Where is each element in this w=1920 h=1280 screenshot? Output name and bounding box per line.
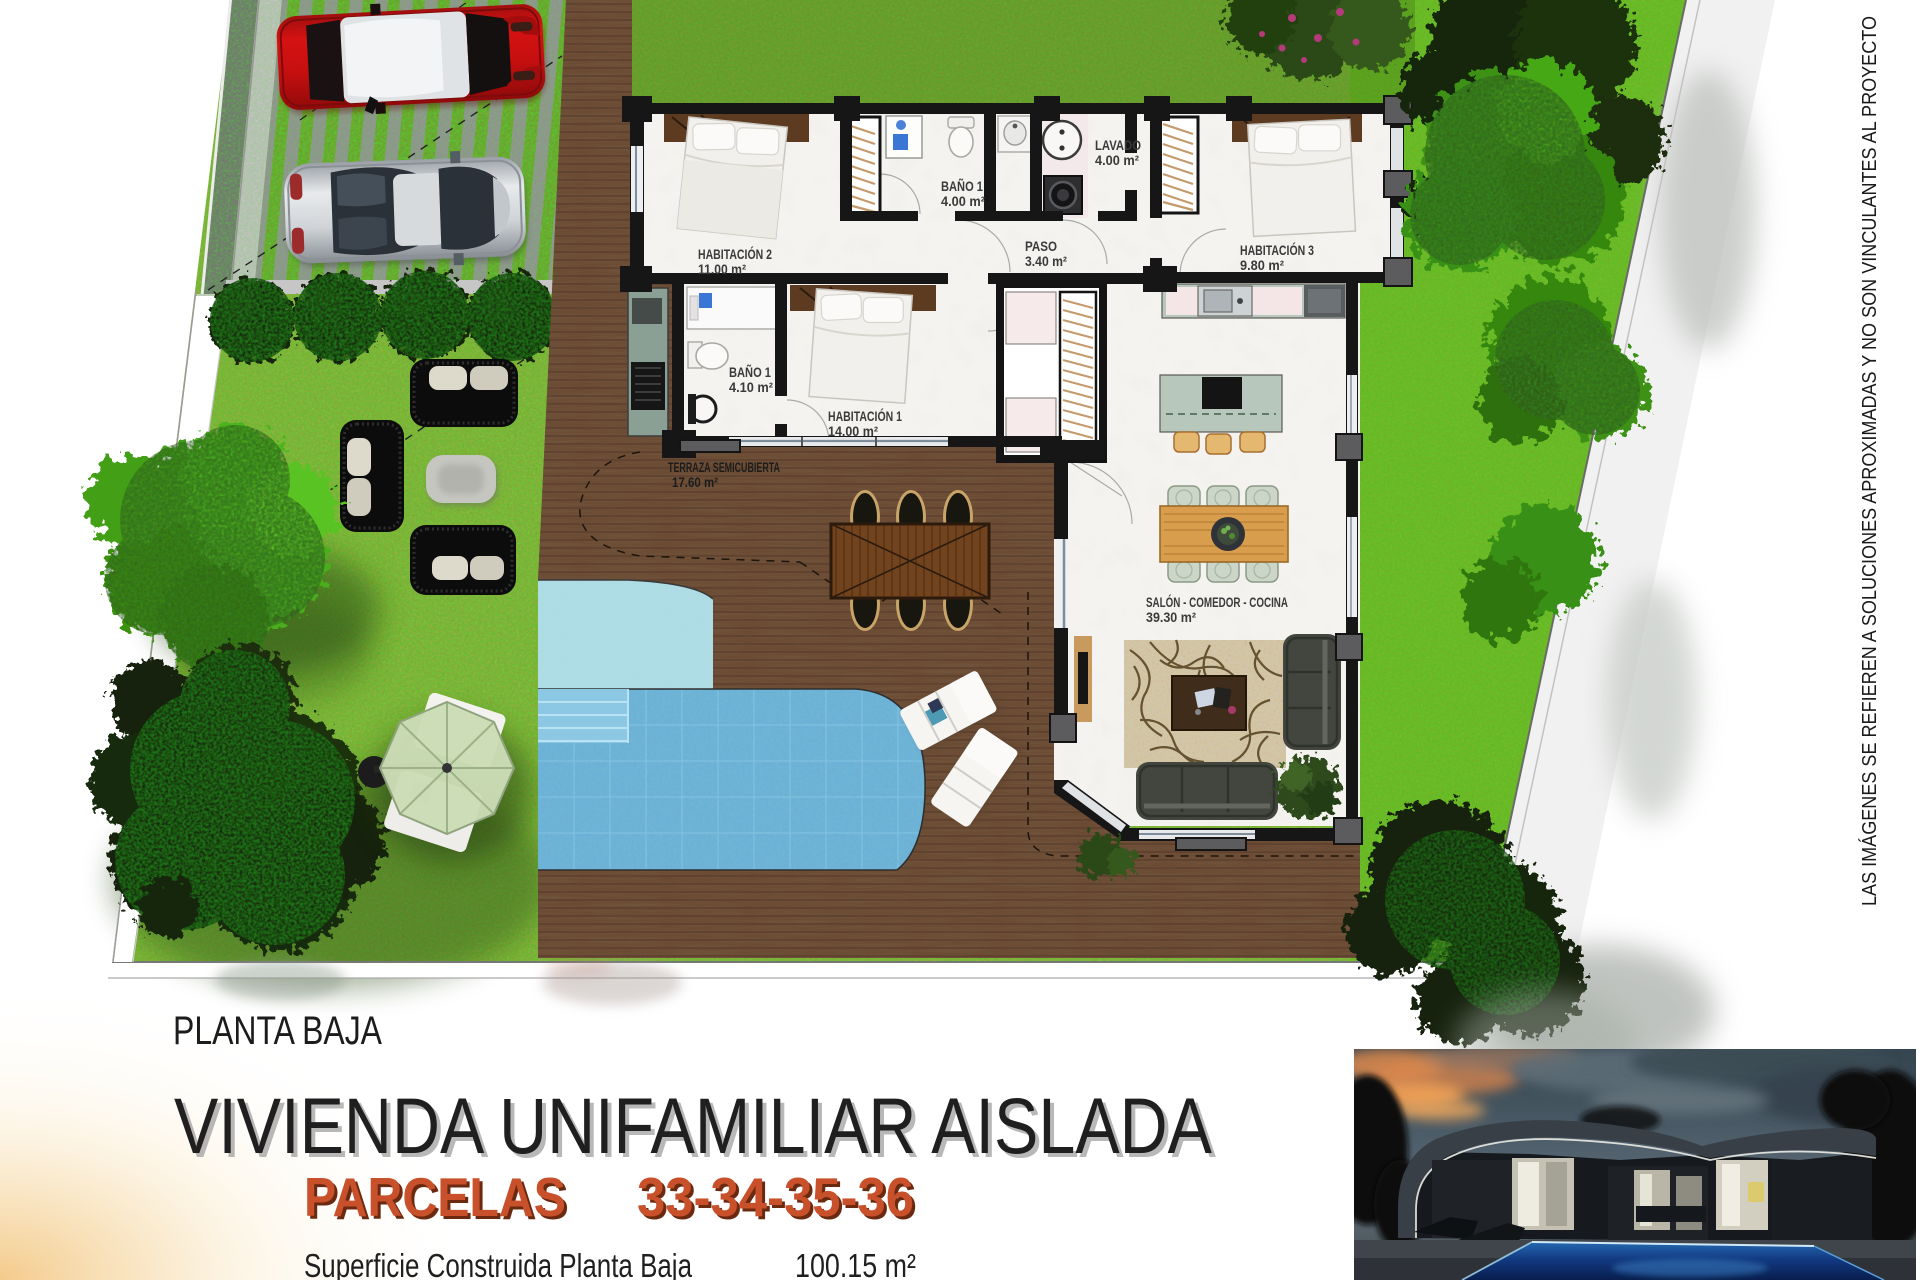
svg-text:Superficie Construida Planta B: Superficie Construida Planta Baja bbox=[304, 1247, 693, 1280]
svg-text:11.00 m²: 11.00 m² bbox=[698, 262, 746, 277]
svg-text:17.60 m²: 17.60 m² bbox=[672, 475, 718, 490]
svg-text:4.10 m²: 4.10 m² bbox=[729, 380, 773, 395]
svg-text:SALÓN - COMEDOR - COCINA: SALÓN - COMEDOR - COCINA bbox=[1146, 595, 1288, 610]
svg-text:14.00 m²: 14.00 m² bbox=[828, 424, 878, 439]
svg-text:39.30 m²: 39.30 m² bbox=[1146, 610, 1196, 625]
svg-text:LAS IMÁGENES SE REFIEREN A SOL: LAS IMÁGENES SE REFIEREN A SOLUCIONES AP… bbox=[1858, 16, 1881, 906]
svg-text:33-34-35-36: 33-34-35-36 bbox=[637, 1166, 914, 1228]
svg-text:4.00 m²: 4.00 m² bbox=[941, 194, 985, 209]
svg-text:VIVIENDA UNIFAMILIAR AISLADA: VIVIENDA UNIFAMILIAR AISLADA bbox=[174, 1081, 1212, 1170]
svg-text:PARCELAS: PARCELAS bbox=[304, 1166, 566, 1228]
svg-text:PASO: PASO bbox=[1025, 239, 1057, 254]
svg-text:TERRAZA SEMICUBIERTA: TERRAZA SEMICUBIERTA bbox=[668, 460, 780, 475]
svg-text:BAÑO 1: BAÑO 1 bbox=[941, 179, 983, 194]
svg-text:9.80 m²: 9.80 m² bbox=[1240, 258, 1284, 273]
svg-text:HABITACIÓN 2: HABITACIÓN 2 bbox=[698, 247, 772, 262]
svg-text:100.15 m²: 100.15 m² bbox=[795, 1247, 916, 1280]
svg-text:4.00 m²: 4.00 m² bbox=[1095, 153, 1139, 168]
svg-text:3.40 m²: 3.40 m² bbox=[1025, 254, 1067, 269]
svg-text:HABITACIÓN 1: HABITACIÓN 1 bbox=[828, 409, 902, 424]
svg-text:HABITACIÓN 3: HABITACIÓN 3 bbox=[1240, 243, 1314, 258]
svg-text:PLANTA BAJA: PLANTA BAJA bbox=[173, 1009, 382, 1053]
svg-text:BAÑO 1: BAÑO 1 bbox=[729, 365, 771, 380]
svg-text:LAVADO: LAVADO bbox=[1095, 138, 1141, 153]
